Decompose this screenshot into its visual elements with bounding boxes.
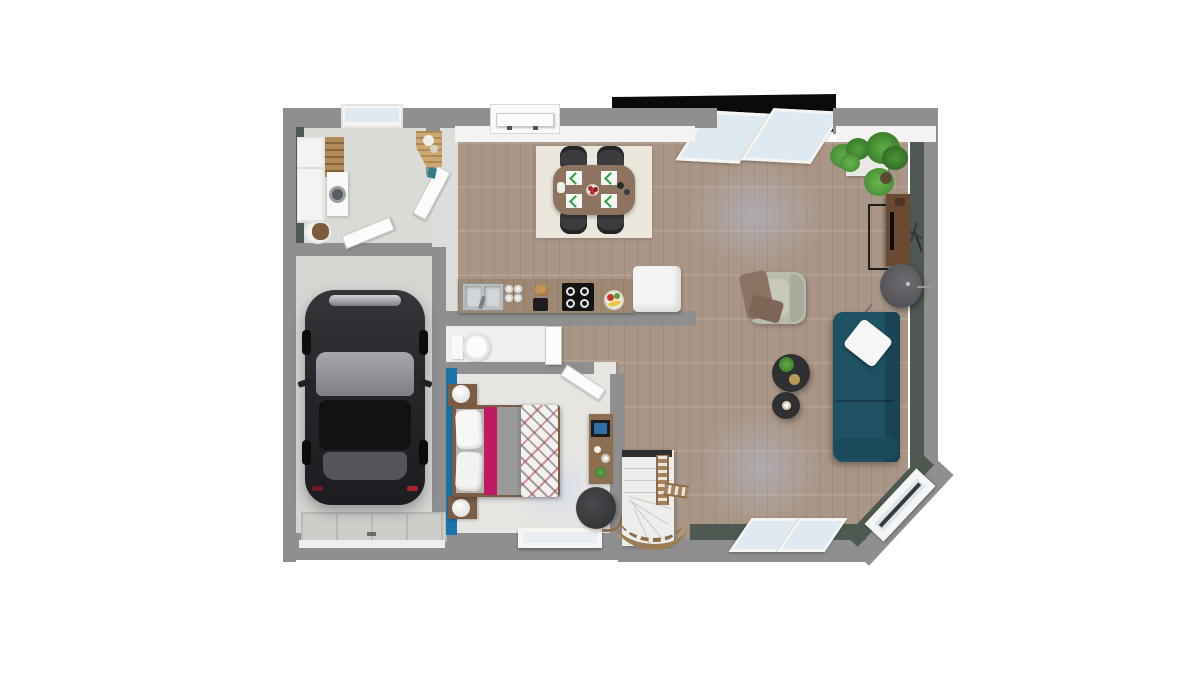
bed-pillow-1 — [455, 409, 483, 449]
wall-kitchen — [446, 311, 696, 326]
table-bowl — [789, 374, 800, 385]
sofa — [833, 312, 900, 462]
green-wall-living-right — [910, 142, 924, 476]
kitchen-sink — [462, 283, 504, 311]
dining-table — [553, 165, 635, 215]
corridor-wood-floor — [556, 326, 618, 362]
sphere-lamp-top — [452, 385, 470, 403]
bedroom-window — [518, 528, 602, 548]
bed-patterned-duvet — [521, 405, 558, 497]
door-hinge-2 — [533, 126, 538, 130]
napkin-green-1 — [569, 172, 582, 185]
washer-drum — [329, 186, 346, 203]
console-handle — [895, 198, 905, 206]
storage-cabinets — [297, 137, 327, 223]
daylight-pool-top — [660, 140, 850, 290]
fruit-red — [607, 294, 614, 301]
desk-plant — [595, 467, 606, 478]
floor-lamp-shade — [880, 264, 922, 308]
utility-window — [341, 104, 403, 128]
cabinet-divider — [297, 167, 327, 169]
burner-3 — [566, 299, 575, 308]
wall-utility-garage — [296, 243, 432, 256]
flower-centerpiece — [586, 184, 599, 196]
washing-machine — [327, 172, 348, 216]
car-rear-window — [323, 452, 407, 480]
napkin-green-3 — [569, 195, 582, 208]
glass-4 — [514, 294, 522, 302]
sofa-seat-seam — [836, 400, 894, 402]
lamp-highlight — [906, 282, 910, 286]
floor-lamp-stem — [917, 286, 931, 288]
car-wheel-rear-right — [419, 440, 428, 465]
stair-handrail-right — [656, 455, 669, 505]
toilet — [452, 332, 492, 362]
teddy-bear — [312, 223, 329, 240]
place-setting-1 — [566, 171, 582, 185]
dining-chair-3 — [560, 212, 587, 234]
desk-item-1 — [594, 446, 601, 453]
car-wheel-front-right — [419, 330, 428, 355]
black-car — [305, 290, 425, 505]
fruit-green — [614, 293, 620, 299]
door-hinge-1 — [507, 126, 512, 130]
staircase — [622, 450, 690, 548]
floor-plan-render — [0, 0, 1200, 675]
plant1-leaf-c — [840, 154, 860, 172]
car-taillight-right — [407, 486, 418, 491]
place-setting-4 — [601, 194, 617, 208]
car-front-glass-strip — [329, 295, 401, 306]
armchair — [748, 272, 806, 324]
refrigerator — [633, 266, 681, 312]
armchair-back — [790, 274, 804, 322]
napkin-green-4 — [604, 195, 617, 208]
wall-garage-right — [432, 247, 446, 533]
bed-pillow-2 — [455, 451, 483, 491]
coffee-table-small — [772, 392, 800, 419]
car-wheel-front-left — [302, 330, 311, 355]
burner-2 — [580, 287, 589, 296]
car-roof — [319, 400, 411, 450]
coffee-maker — [533, 298, 548, 311]
garage-door — [301, 512, 447, 542]
bed-gray-duvet — [497, 407, 521, 495]
car-taillight-left — [312, 486, 323, 491]
kitchen-counter — [458, 279, 636, 313]
burner-1 — [566, 287, 575, 296]
glass-2 — [514, 285, 522, 293]
coffee-cup — [782, 401, 791, 410]
bedroom-window-glass — [523, 532, 597, 543]
garage-door-sill — [299, 540, 445, 548]
toilet-bowl — [463, 333, 490, 361]
sofa-end-cushion — [835, 438, 897, 459]
desk-monitor — [591, 420, 610, 437]
ladder-shelf — [325, 137, 344, 177]
bottle-2 — [624, 189, 630, 195]
dining-chair-4 — [597, 212, 624, 234]
bed-magenta-runner — [484, 407, 497, 495]
coffee-table-large — [772, 354, 810, 392]
cooktop — [562, 283, 594, 311]
bedroom-door-opening — [594, 362, 616, 374]
branch-wall-decor — [903, 220, 929, 258]
car-windshield — [316, 352, 414, 396]
flower-red-dots — [588, 186, 593, 191]
toilet-tank — [452, 336, 463, 359]
wall-left — [283, 108, 296, 562]
place-setting-2 — [601, 171, 617, 185]
plant2-leaf-b — [882, 146, 908, 170]
front-entry-door — [496, 113, 554, 127]
sphere-lamp-bottom — [452, 499, 470, 517]
garage-door-handle — [367, 532, 376, 536]
white-jug — [557, 182, 565, 193]
desk — [589, 414, 613, 484]
wall-bedroom-top — [446, 362, 618, 374]
place-setting-3 — [566, 194, 582, 208]
plant2-pot — [880, 172, 892, 184]
burner-4 — [580, 299, 589, 308]
glass-1 — [505, 285, 513, 293]
bread-loaf — [535, 285, 549, 296]
table-plant-green — [779, 357, 794, 372]
monitor-screen — [594, 423, 607, 434]
double-bed — [452, 405, 560, 497]
pet-bed — [304, 220, 332, 244]
basket-small — [430, 145, 438, 153]
glass-3 — [505, 294, 513, 302]
car-wheel-rear-left — [302, 440, 311, 465]
front-entry-recess — [490, 104, 560, 134]
desk-item-2 — [601, 454, 610, 463]
wall-right — [924, 108, 938, 482]
fruit-bowl — [604, 290, 624, 310]
sink-basin-2 — [484, 286, 500, 307]
utility-window-glass — [345, 108, 399, 122]
office-chair — [576, 487, 616, 529]
wc-door — [545, 326, 562, 365]
bottle-1 — [617, 182, 624, 189]
napkin-green-2 — [604, 172, 617, 185]
tv-screen-edge — [890, 212, 894, 250]
potted-plant-2 — [860, 128, 912, 204]
